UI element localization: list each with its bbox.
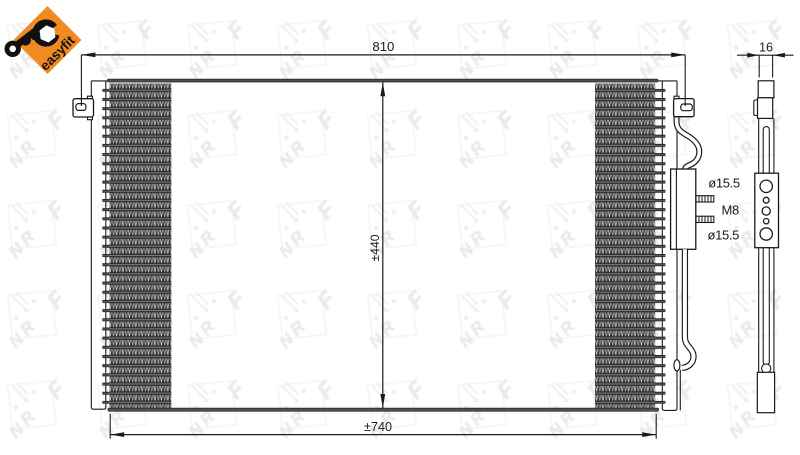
svg-text:±440: ±440	[368, 234, 382, 261]
svg-text:810: 810	[372, 39, 394, 54]
svg-text:±740: ±740	[364, 420, 392, 434]
svg-text:16: 16	[759, 41, 773, 55]
svg-text:M8: M8	[722, 203, 739, 218]
svg-text:ø15.5: ø15.5	[708, 228, 740, 243]
svg-text:ø15.5: ø15.5	[708, 176, 740, 191]
